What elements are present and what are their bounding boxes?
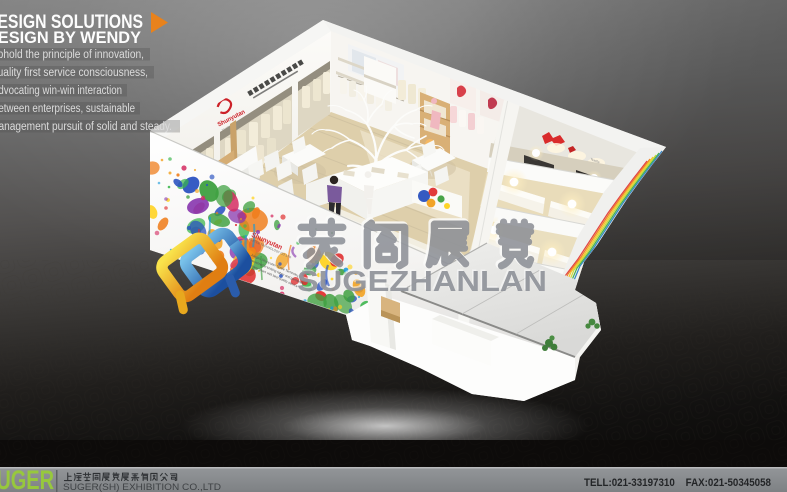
svg-text:SUGER: SUGER (0, 465, 54, 492)
svg-text:TELL:021-33197310 FAX:021-5: TELL:021-33197310 FAX:021-50345058 (584, 477, 771, 489)
svg-text:uphold the principle of innova: uphold the principle of innovation, (0, 49, 144, 61)
svg-text:DESIGN BY WENDY: DESIGN BY WENDY (0, 29, 141, 47)
svg-text:between enterprises, sustainab: between enterprises, sustainable (0, 103, 135, 115)
svg-text:SUGEZHANLAN: SUGEZHANLAN (297, 266, 547, 298)
svg-text:advocating win-win interaction: advocating win-win interaction (0, 85, 122, 97)
svg-text:quality first service consciou: quality first service consciousness, (0, 67, 148, 79)
svg-text:SUGER(SH) EXHIBITION CO.,LTD: SUGER(SH) EXHIBITION CO.,LTD (63, 482, 221, 492)
svg-text:management pursuit of solid an: management pursuit of solid and steady. (0, 121, 172, 133)
